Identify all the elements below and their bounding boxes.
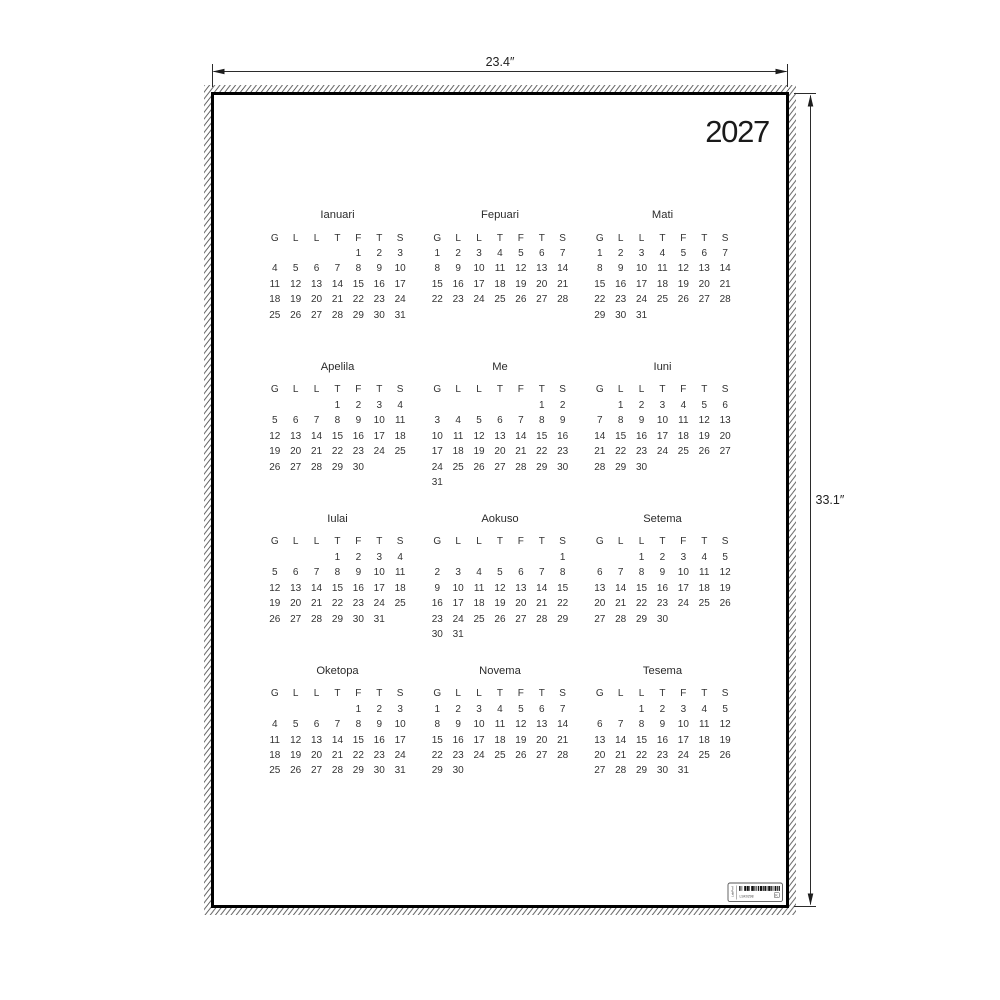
svg-text:LabPmf: LabPmf <box>731 886 735 897</box>
svg-text:LSK0298: LSK0298 <box>740 895 754 899</box>
